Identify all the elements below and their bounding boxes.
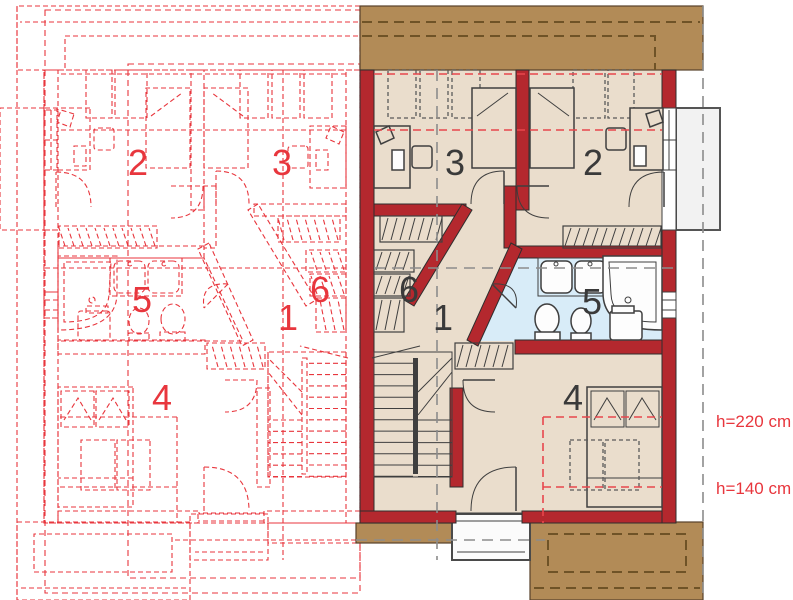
room-label-right-4: 4 [563, 377, 583, 418]
right-wall [662, 318, 676, 523]
monitor [392, 150, 404, 170]
chair [606, 128, 626, 150]
washing-machine [610, 311, 642, 340]
height-annotation-1: h=140 cm [716, 479, 791, 498]
toilet-tank [535, 332, 560, 340]
party-wall [360, 70, 374, 523]
roof-surface [360, 6, 703, 70]
balcony-slab [676, 108, 720, 230]
wall-bathroom-bottom [515, 340, 662, 354]
room-label-left-5: 5 [132, 279, 152, 320]
floor-plan-stage: 326154 235614 h=220 cmh=140 cm [0, 0, 793, 600]
bed-room2 [530, 88, 574, 168]
monitor [634, 146, 646, 166]
height-annotation-0: h=220 cm [716, 412, 791, 431]
room-label-left-2: 2 [128, 142, 148, 183]
chair [412, 146, 432, 168]
bed [472, 88, 516, 168]
bed [530, 88, 574, 168]
window-frame [662, 292, 676, 318]
room-label-left-1: 1 [278, 297, 298, 338]
floor-plan-canvas: 326154 235614 h=220 cmh=140 cm [0, 0, 793, 600]
room-label-right-1: 1 [433, 297, 453, 338]
room-label-left-3: 3 [272, 142, 292, 183]
wall-room2-hall [504, 186, 516, 248]
bottom-wall [360, 511, 456, 523]
bathroom-window [662, 292, 676, 318]
right-wall [662, 230, 676, 292]
room-label-right-3: 3 [445, 142, 465, 183]
room-label-right-2: 2 [583, 142, 603, 183]
toilet [535, 304, 559, 334]
room-label-right-5: 5 [582, 281, 602, 322]
wall-room2-room3 [516, 70, 529, 210]
detergent-tray [612, 306, 634, 313]
bidet-base [571, 333, 591, 340]
stair-rail [413, 358, 418, 474]
roof-band-top [360, 6, 703, 70]
right-wall [662, 70, 676, 110]
wall-room3-bottom [374, 204, 466, 216]
room-label-left-4: 4 [152, 377, 172, 418]
room-label-left-6: 6 [310, 269, 330, 310]
room-label-right-6: 6 [399, 269, 419, 310]
bed-room3 [472, 88, 516, 168]
